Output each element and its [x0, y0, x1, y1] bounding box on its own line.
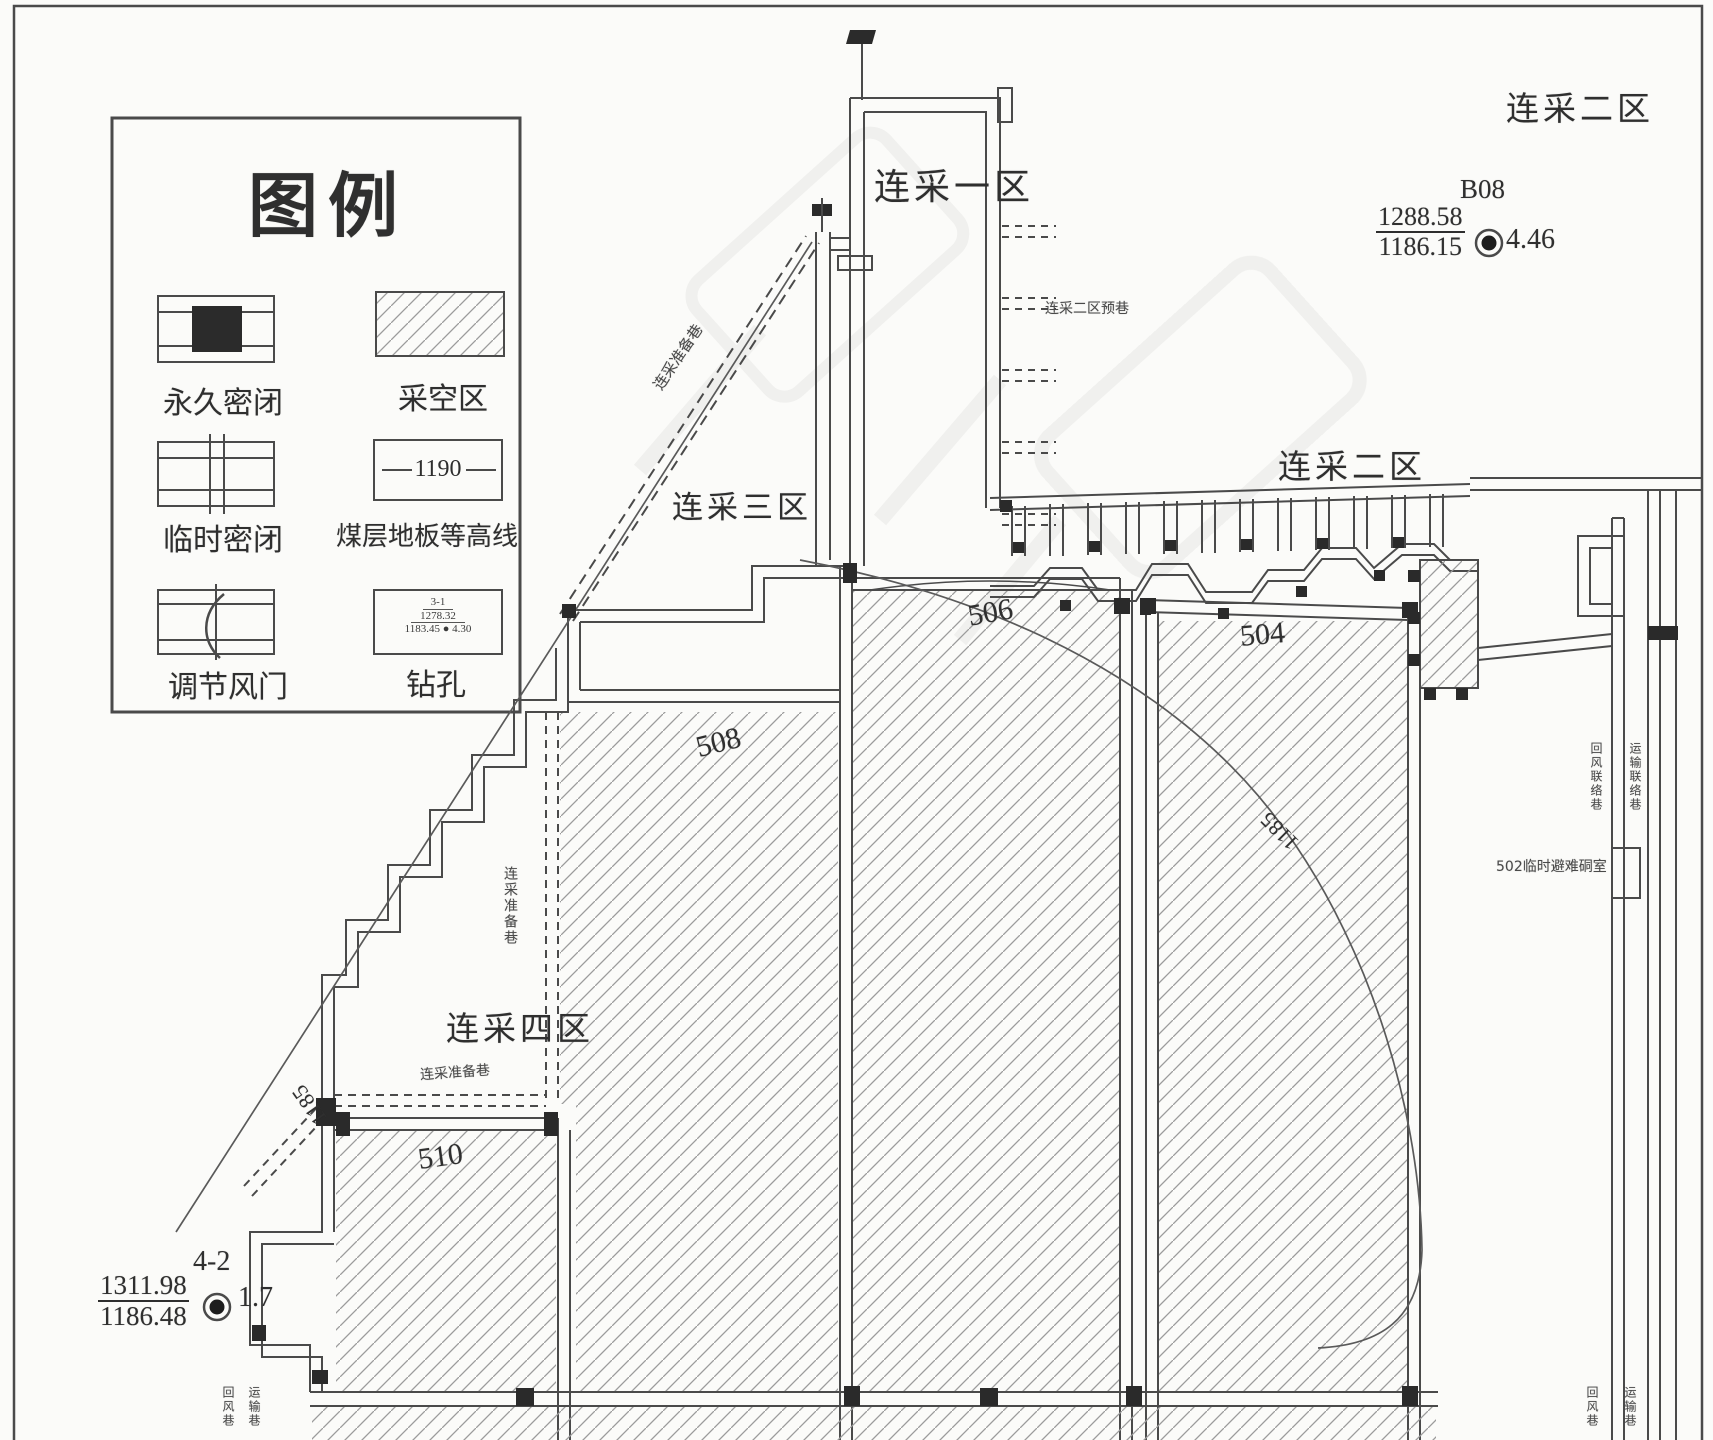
strip-bottom-right-2: 运输巷 — [1622, 1386, 1639, 1440]
panel-508 — [546, 712, 838, 1391]
legend-borehole-name: 3-1 — [423, 596, 453, 610]
borehole-42-value: 1.7 — [238, 1282, 273, 1314]
borehole-b08-elev-top: 1288.58 — [1376, 204, 1465, 233]
annotation-prep-road-2: 连采准备巷 — [500, 866, 520, 981]
lc3-block — [568, 566, 850, 702]
legend-label-temporary-seal: 临时密闭 — [163, 515, 283, 559]
legend-label-air-door: 调节风门 — [168, 662, 288, 706]
zone-lc2-mid: 连采二区 — [1278, 440, 1426, 488]
zone-lc2-corner: 连采二区 — [1506, 82, 1654, 130]
legend-label-permanent-seal: 永久密闭 — [163, 378, 283, 422]
zone-lc4: 连采四区 — [446, 1002, 594, 1050]
borehole-42-elev-top: 1311.98 — [98, 1272, 189, 1302]
borehole-42-name: 4-2 — [193, 1246, 230, 1278]
borehole-42-elev-bottom: 1186.48 — [98, 1302, 189, 1330]
panel-506 — [840, 566, 1132, 1440]
borehole-b08-elev-bottom: 1186.15 — [1376, 233, 1465, 260]
borehole-b08-dot — [1476, 230, 1502, 256]
permanent-seal-symbol — [158, 296, 274, 362]
zone-lc1: 连采一区 — [874, 158, 1034, 210]
right-corridors — [1470, 478, 1702, 1440]
panel-label-504: 504 — [1239, 616, 1287, 654]
borehole-b08-name: B08 — [1460, 174, 1505, 205]
legend-contour-value: 1190 — [374, 456, 502, 483]
borehole-b08-elevations: 1288.58 1186.15 — [1376, 204, 1465, 260]
strip-bottom-right-1: 回风巷 — [1584, 1386, 1601, 1440]
legend-title: 图例 — [248, 150, 408, 251]
borehole-42-dot — [204, 1294, 230, 1320]
bottom-corridor — [310, 1392, 1438, 1440]
goaf-symbol — [376, 292, 504, 356]
strip-bottom-left-1: 回风巷 — [220, 1386, 237, 1440]
legend-borehole-annotation: 3-1 1278.32 1183.45 ● 4.30 — [376, 596, 500, 636]
annotation-refuge-chamber: 502临时避难硐室 — [1496, 856, 1607, 876]
temporary-seal-symbol — [158, 434, 274, 514]
legend-label-borehole: 钻孔 — [406, 660, 466, 704]
strip-mid-1: 回风联络巷 — [1588, 742, 1605, 842]
strip-mid-2: 运输联络巷 — [1627, 742, 1644, 842]
legend-label-contour: 煤层地板等高线 — [336, 516, 518, 553]
borehole-42-elevations: 1311.98 1186.48 — [98, 1272, 189, 1330]
zone-lc3: 连采三区 — [672, 482, 812, 527]
legend-label-goaf: 采空区 — [398, 374, 488, 418]
legend-borehole-value: 4.30 — [452, 623, 471, 635]
panel-label-510: 510 — [416, 1137, 465, 1177]
air-door-symbol — [158, 584, 274, 660]
annotation-lc2-branch: 连采二区预巷 — [1045, 298, 1129, 318]
legend-borehole-elev-bottom: 1183.45 — [405, 623, 440, 635]
borehole-b08-value: 4.46 — [1506, 224, 1555, 256]
strip-bottom-left-2: 运输巷 — [246, 1386, 263, 1440]
mine-plan-canvas: 图例 永久密闭 采空区 临时密闭 煤层地板等高线 调节风门 钻孔 1190 3-… — [0, 0, 1713, 1440]
legend-borehole-elev-top: 1278.32 — [411, 610, 465, 624]
